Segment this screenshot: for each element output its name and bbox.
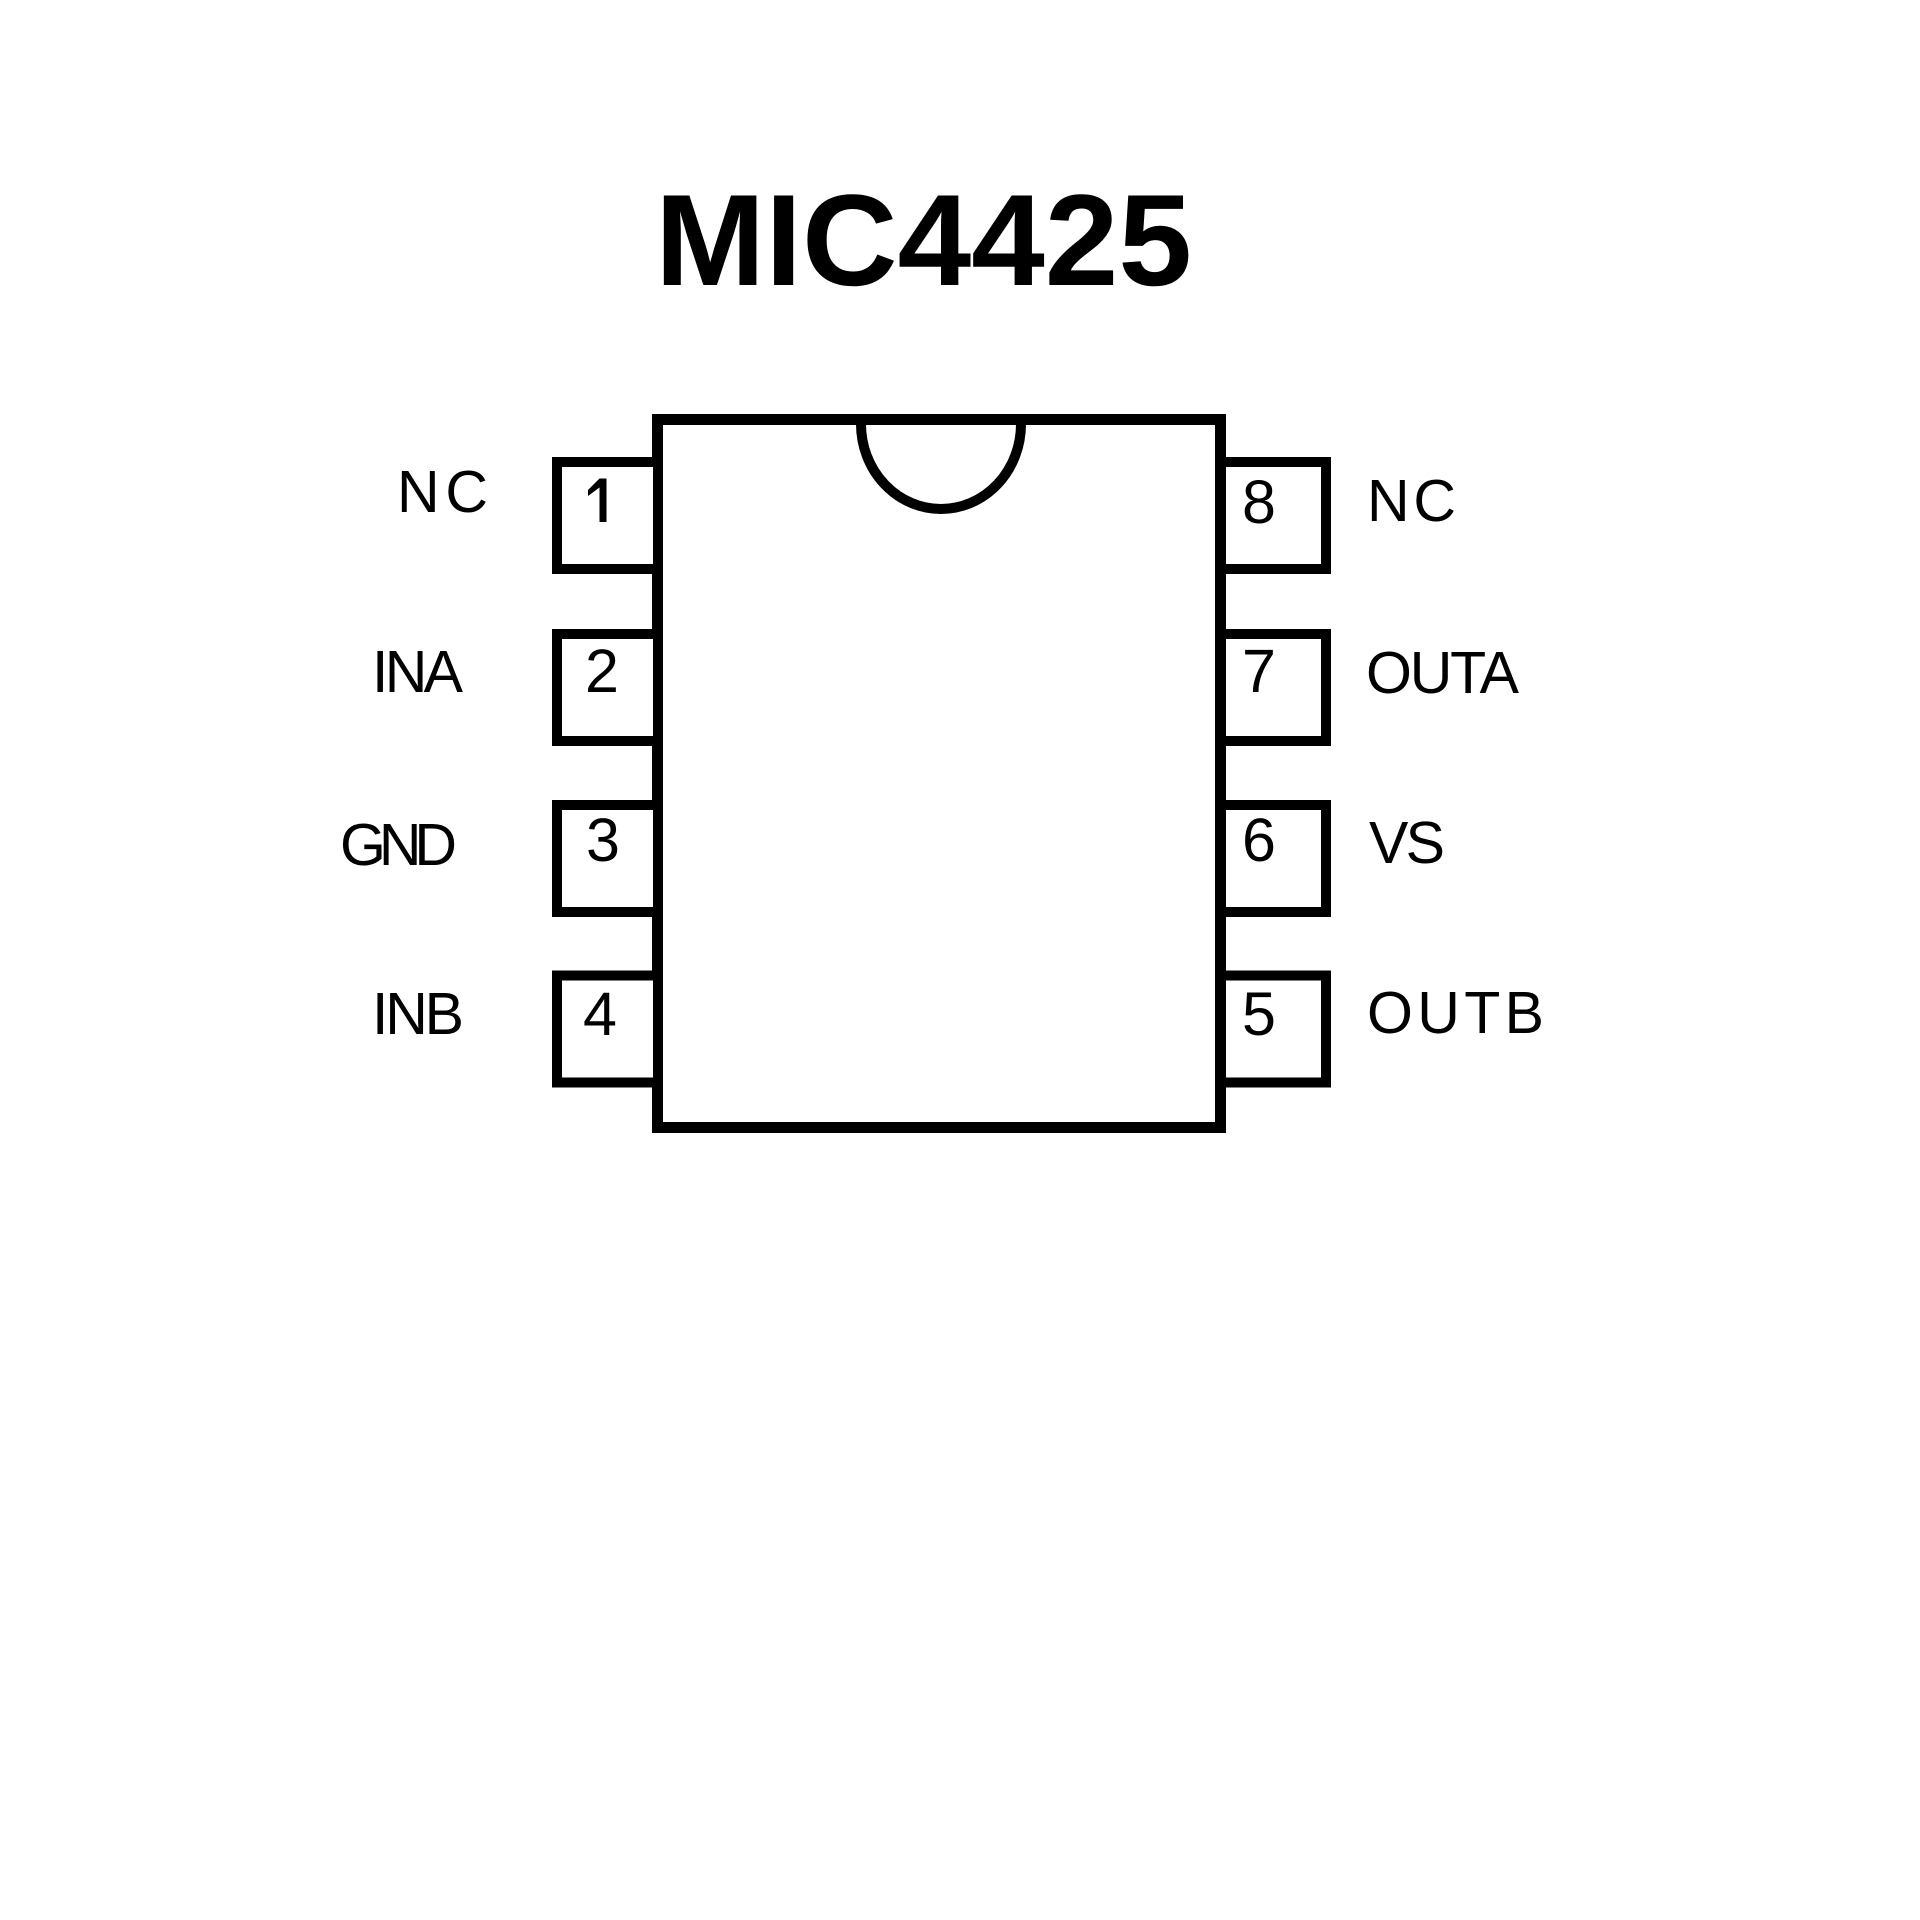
svg-text:4: 4 [583,980,617,1048]
svg-text:INB: INB [372,981,464,1047]
svg-text:OUTA: OUTA [1366,640,1520,706]
svg-text:MIC4425: MIC4425 [655,167,1192,313]
svg-text:GND: GND [340,812,457,878]
svg-text:6: 6 [1242,806,1276,874]
svg-text:7: 7 [1242,637,1276,705]
svg-text:OUTB: OUTB [1367,980,1544,1046]
svg-text:INA: INA [372,639,464,705]
svg-text:3: 3 [586,806,620,874]
svg-text:8: 8 [1242,468,1276,536]
svg-text:2: 2 [585,637,619,705]
svg-text:5: 5 [1242,980,1276,1048]
svg-text:VS: VS [1369,810,1445,876]
